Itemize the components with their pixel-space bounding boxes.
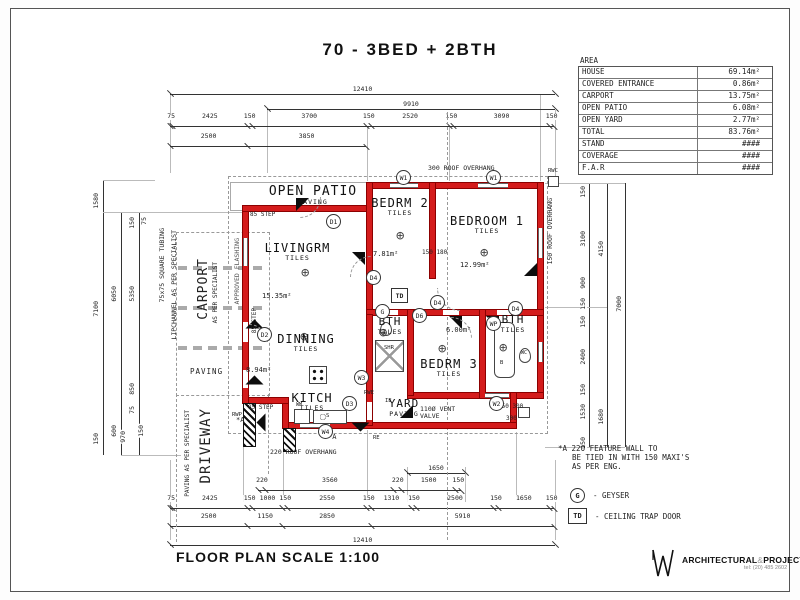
dim-1650: 1650 bbox=[407, 459, 465, 474]
ceiling-light-icon: ⊕ bbox=[301, 266, 309, 280]
room-floor: TILES bbox=[438, 227, 536, 235]
dim-segment: 1650 bbox=[498, 503, 549, 509]
driveway-line bbox=[176, 394, 177, 542]
room-name: BEDRM 2 bbox=[370, 197, 430, 209]
door-tag-label: D2 bbox=[261, 331, 269, 339]
dim-segment: 1150 bbox=[247, 521, 283, 527]
area-table-value: 6.08m² bbox=[698, 103, 772, 114]
vent-label-line2: VALVE bbox=[420, 412, 440, 420]
dim-label: 1680 bbox=[598, 408, 605, 426]
area-table-value: 69.14m² bbox=[698, 67, 772, 78]
dim-segment: 2425 bbox=[172, 503, 247, 509]
area-table-label: STAND bbox=[579, 139, 698, 150]
dim-segment: 1000 bbox=[252, 503, 283, 509]
extension-line bbox=[516, 432, 517, 502]
area-table-value: 13.75m² bbox=[698, 91, 772, 102]
dim-label: 3700 bbox=[300, 113, 318, 120]
dim-segment: 2550 bbox=[288, 503, 367, 509]
door-tag-d2: D2 bbox=[257, 327, 272, 342]
area-table-row: COVERAGE#### bbox=[579, 151, 772, 163]
area-table-row: HOUSE69.14m² bbox=[579, 67, 772, 79]
dim-label: 850 bbox=[129, 382, 136, 396]
room-name: BEDROOM 1 bbox=[438, 215, 536, 227]
room-driveway-sub: PAVING AS PER SPECIALIST bbox=[184, 410, 191, 497]
room-name: LIVINGRM bbox=[250, 242, 345, 254]
dim-chain-bottom1: 22035602201500150 bbox=[258, 477, 462, 491]
dim-label: 220 bbox=[255, 477, 269, 484]
dim-9910: 9910 bbox=[267, 95, 555, 110]
area-table-row: TOTAL83.76m² bbox=[579, 127, 772, 139]
dim-label: 970 bbox=[120, 430, 127, 444]
area-table-row: OPEN PATIO6.08m² bbox=[579, 103, 772, 115]
area-table-label: OPEN YARD bbox=[579, 115, 698, 126]
feature-wall-mark: *A bbox=[236, 417, 244, 424]
ceiling-light-icon: ⊕ bbox=[499, 341, 507, 355]
company-logo: ARCHITECTURAL&PROJECTSERVICES tel: (20) … bbox=[650, 548, 800, 578]
dim-segment: 2500 bbox=[170, 521, 247, 527]
door-tag-d4: D4 bbox=[366, 270, 381, 285]
area-table-label: COVERED ENTRANCE bbox=[579, 79, 698, 90]
room-bedrm2: BEDRM 2 TILES bbox=[370, 197, 430, 217]
dim-label: 150 bbox=[580, 383, 587, 397]
area-table-label: CARPORT bbox=[579, 91, 698, 102]
dim-segment: 3090 bbox=[454, 121, 550, 127]
rwe-label: RWE bbox=[364, 390, 374, 397]
dim-segment: 5910 bbox=[371, 521, 554, 527]
dim-label: 1530 bbox=[580, 403, 587, 421]
room-livingrm: LIVINGRM TILES bbox=[250, 242, 345, 262]
extension-line bbox=[367, 126, 368, 181]
dim-label: 150 bbox=[129, 216, 136, 230]
door-tag-label: D6 bbox=[416, 312, 424, 320]
roof-overhang-right: 150 ROOF OVERHANG bbox=[546, 198, 554, 265]
geyser-symbol: G bbox=[570, 488, 585, 503]
geyser-symbol-label: G bbox=[575, 492, 579, 500]
door-tag-label: D4 bbox=[434, 299, 442, 307]
extension-line bbox=[367, 430, 368, 502]
area-table-row: COVERED ENTRANCE0.86m² bbox=[579, 79, 772, 91]
dim-label: 6050 bbox=[111, 285, 118, 303]
area-table: HOUSE69.14m²COVERED ENTRANCE0.86m²CARPOR… bbox=[578, 66, 773, 175]
dim-label: 2500 bbox=[446, 495, 464, 502]
dim-label: 150 bbox=[545, 113, 559, 120]
dim-label: 150 bbox=[489, 495, 503, 502]
wall-segment bbox=[480, 310, 485, 398]
room-dinning: DINNING TILES bbox=[270, 333, 342, 353]
dim-label: 1650 bbox=[515, 495, 533, 502]
wall-segment bbox=[538, 183, 543, 398]
note-line: BE TIED IN WITH 150 MAXI'S bbox=[558, 453, 689, 462]
area-table-label: TOTAL bbox=[579, 127, 698, 138]
dim-chain-bottom3: 2500115028505910 bbox=[170, 513, 555, 527]
dim-label: 150 bbox=[362, 113, 376, 120]
extension-line bbox=[449, 126, 450, 181]
door-tag-label: D4 bbox=[370, 274, 378, 282]
area-table-value: 2.77m² bbox=[698, 115, 772, 126]
dim-segment: 2500 bbox=[416, 503, 493, 509]
window-tag-label: W4 bbox=[322, 428, 330, 436]
note-line: AS PER ENG. bbox=[558, 462, 689, 471]
dim-label: 900 bbox=[580, 276, 587, 290]
room-area: 8.94m² bbox=[246, 366, 271, 374]
dim-label: 1310 bbox=[383, 495, 401, 502]
window bbox=[538, 342, 543, 362]
window-tag-label: W3 bbox=[358, 374, 366, 382]
dim-label: 2500 bbox=[200, 513, 218, 520]
legend-geyser-text: - GEYSER bbox=[593, 491, 629, 500]
step-label: 85 STEP bbox=[251, 308, 258, 333]
step-label: 85 STEP bbox=[248, 404, 273, 411]
logo-tel: tel: (20) 485 2602 bbox=[744, 565, 787, 571]
roof-overhang-bottom: 220 ROOF OVERHANG bbox=[270, 449, 337, 456]
dim-segment: 1310 bbox=[371, 503, 412, 509]
dim-line-right bbox=[607, 183, 608, 447]
shr-label: SHR bbox=[384, 345, 394, 352]
area-table-value: #### bbox=[698, 163, 772, 174]
carport-beam bbox=[178, 266, 266, 270]
wp-label: WP bbox=[490, 320, 498, 328]
room-floor: TILES bbox=[373, 328, 407, 336]
dim-label: 1000 bbox=[259, 495, 277, 502]
dim-segment: 2500 bbox=[170, 141, 247, 147]
note-line: *A 220 FEATURE WALL TO bbox=[558, 444, 689, 453]
dim-label: 150 bbox=[580, 297, 587, 311]
dim-label: 150 bbox=[93, 432, 100, 446]
dim-label: 2400 bbox=[580, 348, 587, 366]
rwc-label: RWC bbox=[548, 168, 558, 175]
dim-12410-bottom: 12410 bbox=[170, 531, 555, 546]
dim-label: 3090 bbox=[493, 113, 511, 120]
dim-label: 75 bbox=[129, 405, 136, 415]
dim-segment: 3560 bbox=[266, 485, 394, 491]
room-floor: TILES bbox=[413, 370, 485, 378]
extension-line bbox=[121, 455, 181, 456]
dim-segment: 3700 bbox=[252, 121, 366, 127]
dim-label: 1580 bbox=[93, 192, 100, 210]
area-table-label: COVERAGE bbox=[579, 151, 698, 162]
room-bedroom1: BEDROOM 1 TILES bbox=[438, 215, 536, 235]
dim-label: 3850 bbox=[298, 133, 316, 140]
carport-beam bbox=[178, 346, 266, 350]
feature-wall-note: *A 220 FEATURE WALL TO BE TIED IN WITH 1… bbox=[558, 444, 689, 471]
window-tag-w2: W2 bbox=[489, 396, 504, 411]
re-label: RE bbox=[373, 435, 380, 442]
area-table-row: OPEN YARD2.77m² bbox=[579, 115, 772, 127]
dim-label: 150 bbox=[243, 113, 257, 120]
dim-300: 300 bbox=[506, 415, 517, 422]
door-tag-label: D3 bbox=[346, 400, 354, 408]
sink-icon bbox=[313, 410, 347, 424]
dim-chain-top2: 25003850 bbox=[170, 133, 367, 147]
door-tag-label: D4 bbox=[512, 305, 520, 313]
wp-symbol: WP bbox=[486, 316, 501, 331]
room-area: 15.35m² bbox=[262, 292, 292, 300]
dim-label: 150 bbox=[451, 477, 465, 484]
step-label: 85 STEP bbox=[250, 211, 275, 218]
legend-trap-door-text: - CEILING TRAP DOOR bbox=[595, 512, 681, 521]
dim-line-right bbox=[589, 183, 590, 447]
room-driveway-name: DRIVEWAY bbox=[198, 408, 214, 483]
dim-label: 150 bbox=[243, 495, 257, 502]
dim-label: 150 bbox=[278, 495, 292, 502]
room-name: OPEN PATIO bbox=[258, 186, 368, 198]
window-tag-w4: W4 bbox=[318, 424, 333, 439]
area-table-label: HOUSE bbox=[579, 67, 698, 78]
room-name: KITCH bbox=[283, 392, 341, 404]
wm-label: WM bbox=[296, 402, 302, 409]
dim-label: 2850 bbox=[318, 513, 336, 520]
window bbox=[243, 238, 248, 266]
dim-line-left bbox=[139, 212, 140, 455]
brand-part: PROJECT bbox=[763, 555, 800, 565]
area-table-row: F.A.R#### bbox=[579, 163, 772, 174]
window-tag-w3: W3 bbox=[354, 370, 369, 385]
room-area: 7.81m² bbox=[373, 250, 398, 258]
dim-150-180: 150 180 bbox=[422, 249, 447, 256]
tubing-note: 75x75 SQUARE TUBING bbox=[158, 228, 166, 302]
dim-label: 150 bbox=[580, 315, 587, 329]
room-floor: TILES bbox=[283, 404, 341, 412]
room-carport-sub: AS PER SPECIALIST bbox=[212, 262, 219, 323]
area-table-value: #### bbox=[698, 139, 772, 150]
dim-label: 220 bbox=[391, 477, 405, 484]
dim-label: 150 bbox=[545, 495, 559, 502]
logo-brand: ARCHITECTURAL&PROJECTSERVICES bbox=[682, 555, 800, 565]
sink-label: S bbox=[326, 413, 329, 420]
door-tag-d3: D3 bbox=[342, 396, 357, 411]
dim-label: 150 bbox=[580, 185, 587, 199]
room-name: DINNING bbox=[270, 333, 342, 345]
dim-label: 5350 bbox=[129, 285, 136, 303]
wall-segment bbox=[430, 183, 435, 278]
dim-label: 2425 bbox=[201, 495, 219, 502]
area-table-value: 0.86m² bbox=[698, 79, 772, 90]
window bbox=[538, 228, 543, 258]
floor-plan-scale-label: FLOOR PLAN SCALE 1:100 bbox=[176, 549, 380, 565]
area-table-header: AREA bbox=[580, 56, 598, 65]
room-name: BEDRM 3 bbox=[413, 358, 485, 370]
stove-icon bbox=[309, 366, 327, 384]
room-floor: PAVING bbox=[258, 198, 368, 206]
lipchannel-note: LIPCHANNEL AS PER SPECIALIST bbox=[170, 230, 178, 340]
dim-segment: 3850 bbox=[247, 141, 366, 147]
brand-part: ARCHITECTURAL bbox=[682, 555, 757, 565]
room-open-patio: OPEN PATIO PAVING bbox=[258, 186, 368, 206]
dim-label: 600 bbox=[111, 424, 118, 438]
window-tag-w1: W1 bbox=[396, 170, 411, 185]
dim-label: 7100 bbox=[93, 300, 100, 318]
room-kitch: KITCH TILES bbox=[283, 392, 341, 412]
dim-segment: 2520 bbox=[371, 121, 449, 127]
trap-door-label: TD bbox=[396, 292, 404, 300]
door-opening bbox=[243, 322, 248, 342]
dim-line-right bbox=[625, 183, 626, 447]
ceiling-light-icon: ⊕ bbox=[396, 229, 404, 243]
dim-label: 2425 bbox=[201, 113, 219, 120]
ceiling-light-icon: ⊕ bbox=[480, 246, 488, 260]
trap-door-symbol-label: TD bbox=[573, 512, 581, 520]
window-tag-w1: W1 bbox=[486, 170, 501, 185]
dim-segment: 2425 bbox=[172, 121, 247, 127]
dim-label: 5910 bbox=[454, 513, 472, 520]
dim-label: 75 bbox=[166, 113, 176, 120]
rwc-box bbox=[548, 176, 559, 187]
carport-paving-label: PAVING bbox=[190, 368, 223, 375]
room-floor: TILES bbox=[250, 254, 345, 262]
area-table-label: F.A.R bbox=[579, 163, 698, 174]
dim-label: 4150 bbox=[598, 240, 605, 258]
window-tag-label: W1 bbox=[400, 174, 408, 182]
wall-segment bbox=[408, 310, 413, 395]
dim-label: 150 bbox=[362, 495, 376, 502]
room-carport-name: CARPORT bbox=[196, 258, 211, 320]
dim-label: 3560 bbox=[321, 477, 339, 484]
extension-line bbox=[103, 180, 155, 181]
dim-label: 2520 bbox=[401, 113, 419, 120]
legend-geyser: G - GEYSER bbox=[570, 488, 629, 503]
window-tag-label: W2 bbox=[493, 400, 501, 408]
logo-zigzag-icon bbox=[650, 548, 676, 578]
dim-label: 2550 bbox=[318, 495, 336, 502]
dim-line-left bbox=[103, 180, 104, 455]
room-area: 6.00m² bbox=[446, 326, 471, 334]
extension-line bbox=[545, 307, 607, 308]
flashing-note: APPROVED FLASHING bbox=[233, 238, 241, 305]
vent-label: 110Ø VENT VALVE bbox=[420, 406, 455, 420]
door-tag-d6: D6 bbox=[412, 308, 427, 323]
dim-label: 75 bbox=[166, 495, 176, 502]
page-title: 70 - 3BED + 2BTH bbox=[290, 40, 530, 60]
dim-line-left bbox=[121, 212, 122, 455]
bath-label: B bbox=[500, 360, 503, 367]
window-tag-label: W1 bbox=[490, 174, 498, 182]
area-table-label: OPEN PATIO bbox=[579, 103, 698, 114]
dim-label: 75 bbox=[141, 216, 148, 226]
extension-line bbox=[103, 212, 243, 213]
door-tag-label: D1 bbox=[330, 218, 338, 226]
ie-label: IE bbox=[385, 398, 392, 405]
door-tag-d4: D4 bbox=[508, 301, 523, 316]
door-opening bbox=[367, 402, 372, 420]
dim-label: 7000 bbox=[616, 295, 623, 313]
door-tag-d4: D4 bbox=[430, 295, 445, 310]
room-bedrm3: BEDRM 3 TILES bbox=[413, 358, 485, 378]
room-floor: TILES bbox=[370, 209, 430, 217]
room-area: 12.99m² bbox=[460, 261, 490, 269]
legend-trap-door: TD - CEILING TRAP DOOR bbox=[568, 508, 681, 524]
dim-chain-top: 752425150370015025201503090150 bbox=[170, 113, 555, 127]
door-tag-d1: D1 bbox=[326, 214, 341, 229]
geyser-label: G bbox=[381, 308, 385, 316]
wc-label: WC bbox=[521, 350, 527, 357]
dim-chain-bottom2: 7524251501000150255015013101502500150165… bbox=[170, 495, 555, 509]
area-table-row: CARPORT13.75m² bbox=[579, 91, 772, 103]
dim-12410-top: 12410 bbox=[170, 80, 555, 95]
roof-overhang-top: 300 ROOF OVERHANG bbox=[428, 165, 495, 172]
dim-label: 3100 bbox=[580, 230, 587, 248]
area-table-value: #### bbox=[698, 151, 772, 162]
ceiling-light-icon: ⊕ bbox=[438, 342, 446, 356]
dim-label: 150 bbox=[407, 495, 421, 502]
dim-label: 150 bbox=[138, 424, 145, 438]
dim-segment: 2850 bbox=[283, 521, 371, 527]
room-bth1: BTH TILES bbox=[373, 316, 407, 336]
area-table-value: 83.76m² bbox=[698, 127, 772, 138]
area-table-row: STAND#### bbox=[579, 139, 772, 151]
trap-door-symbol: TD bbox=[568, 508, 587, 524]
room-floor: TILES bbox=[270, 345, 342, 353]
geyser-symbol: G bbox=[375, 304, 390, 319]
dim-label: 1150 bbox=[256, 513, 274, 520]
trap-door-symbol: TD bbox=[391, 288, 408, 303]
dim-label: 2500 bbox=[200, 133, 218, 140]
dim-label: 1500 bbox=[420, 477, 438, 484]
